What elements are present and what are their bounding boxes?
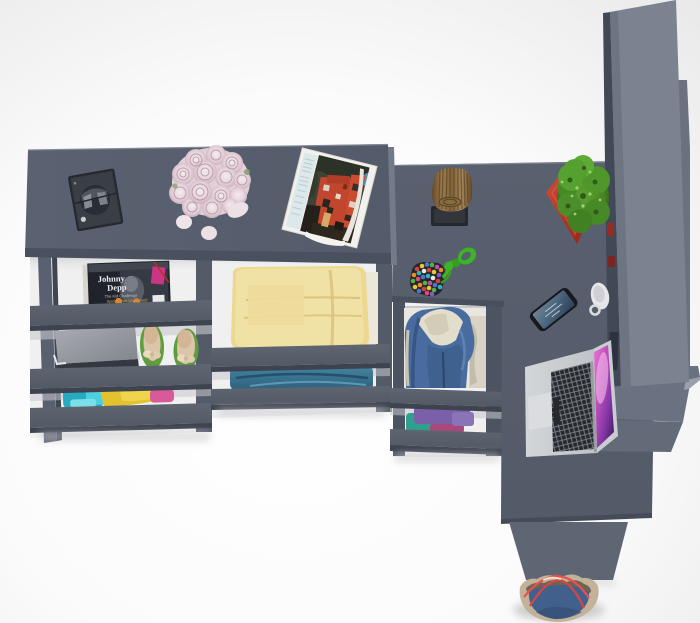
svg-text:Depp: Depp — [107, 282, 127, 293]
